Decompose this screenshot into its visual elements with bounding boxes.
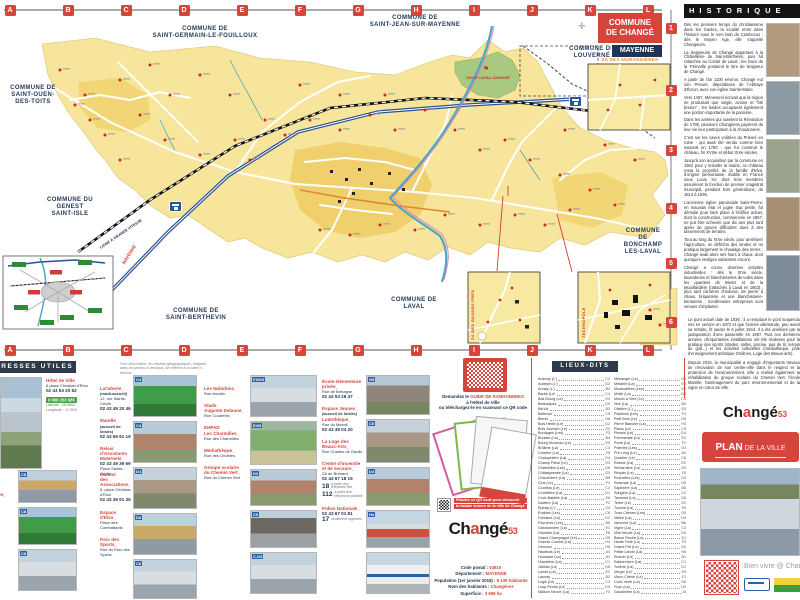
golf-label: GOLF LAVAL-CHANGÉ [458,76,518,81]
guide-line2: GUIDE DE RANDONNÉES [470,394,524,399]
qr-code-balade [437,498,451,512]
adresses-utiles-header: ADRESSES UTILES [0,361,76,373]
lieu-dit-label [383,223,390,225]
lieu-dit-label [173,93,180,95]
lieu-dit-label [268,118,275,120]
lieu-dit-label [388,93,395,95]
grid-letter-top: K [585,5,596,16]
lieu-dit-dot [569,209,572,212]
grid-letter-bottom: B [63,345,74,356]
lieu-dit-dot [59,69,62,72]
address-entry: Maisondes Associations_6, place Christia… [100,472,131,503]
grid-letter-top: J [527,5,538,16]
lieu-dit-label [608,143,615,145]
address-entry: EHPADLes Charmilles_Rue des Charmilles [204,425,248,440]
commune-label: COMMUNE DE SAINT-GERMAIN-LE-FOUILLOUX [153,26,258,40]
lieu-dit-dot [199,74,202,77]
lieu-dit-dot [544,224,547,227]
lieu-dit-label [168,138,175,140]
motorway-icon [570,97,581,106]
photo: C8 [18,549,77,591]
toll-free-badge: 0 800 203 685 [46,397,77,403]
address-entry: Pôle d'enseignementartistique Les Ondine… [0,487,12,507]
historique-paragraph: Dès les premiers temps du christianisme … [684,23,763,48]
photo: D4 [366,467,430,506]
lieu-dit-dot [564,129,567,132]
lieu-dit-dot [229,94,232,97]
photo-chateau-aerial [700,468,800,556]
lieu-dit-label [548,223,555,225]
lieu-dit-label [203,153,210,155]
lieu-dit-dot [284,134,287,137]
guide-line1: Demandez le [442,394,469,399]
grid-letter-top: G [353,5,364,16]
photo-fire-station: H4 [366,510,430,548]
lieu-dit-label [343,128,350,130]
historique-header: HISTORIQUE [684,4,800,18]
lieu-dit-label [153,63,160,65]
address-entry: Centre d'incendieet de secours_ZA de Bré… [322,461,364,499]
photo-police-car [366,552,430,594]
photo-tag: C8 [20,551,27,556]
divider [684,358,685,398]
lieu-dit-label [288,133,295,135]
lieu-dit-label [143,113,150,115]
lieu-dit-label [418,228,425,230]
grid-letter-top: L [643,5,654,16]
lieu-dit-label [428,108,435,110]
address-entry: Parc des Sports_Rue du Parc des Sports [100,537,131,557]
photo: D4 [133,467,197,509]
address-entry: StadeAuguste Delaune_Rue Coubertin [204,403,248,418]
address-column-1-bottom: Maisondes Associations_6, place Christia… [100,472,131,564]
lieu-dit-dot [604,144,607,147]
qr-code-footer [704,560,739,595]
lieu-dit-label [353,233,360,235]
grid-letter-bottom: A [5,345,16,356]
lieu-dit-label [233,93,240,95]
lieu-dit-label [123,158,130,160]
tagline: Bien vivre @ Changé [744,562,800,571]
lieu-dit-label [123,78,130,80]
historique-paragraph: Tout au long du XIXe siècle, pour amélio… [684,238,763,263]
lieu-dit-dot [379,224,382,227]
address-entry: Multi-accueil_02 43 49 04 42 [0,470,12,480]
lieu-dit-label [63,68,70,70]
lieu-dit-label [653,308,660,310]
lieu-dit-dot [424,109,427,112]
lieu-dit-label [618,203,625,205]
photo-tag: C6 [135,561,142,566]
lieu-dit-dot [559,174,562,177]
lieu-dit-dot [414,229,417,232]
lieu-dit-dot [74,104,77,107]
change53-logo: Changé53 [437,519,529,539]
photo-tag: C-D3 [252,554,263,559]
lieu-dit-label [93,118,100,120]
lieu-dit-label [203,73,210,75]
lieu-dit-dot [454,129,457,132]
lieu-dit-dot [634,159,637,162]
lieu-dit-label [313,118,320,120]
address-column-1-side: Lal'aberie_(multi-accueil)12, rue Sainte… [100,386,131,483]
lieu-dit-label [508,138,515,140]
address-column-1-main: Hôtel de Ville_6 place Christian d'Elva0… [46,378,98,421]
commune-label: COMMUNE DE SAINT-OUEN- DES-TOITS [10,85,56,106]
lieu-dit-label [563,173,570,175]
address-entry: École élémentaireprivée_Rue de Bretagne0… [322,379,364,399]
grid-letter-bottom: G [353,345,364,356]
lieu-dit-dot [529,159,532,162]
plan-de-la-ville-badge: PLAN DE LA VILLE [702,432,799,462]
inset-technopole-label: TECHNOPOLE [582,307,586,338]
lieu-dit-dot [514,214,517,217]
address-column-2: Les Nabidons_Rue AncelinStadeAuguste Del… [204,386,248,487]
photo-tag: C4 [135,377,142,382]
lieu-dit-dot [249,159,252,162]
inset-za-morandieres [588,64,670,130]
photo-tag: C8 [20,509,27,514]
lieux-dits-header: LIEUX-DITS [552,361,618,372]
historique-paragraph: Vers 1497, Ménesvrel écrivait que la rég… [684,96,763,116]
map-department-box: MAYENNE [612,45,662,57]
lieu-dit-dot [339,94,342,97]
lieu-dit-dot [169,94,172,97]
photo-tag: E4/5 [252,423,262,428]
grid-letter-top: B [63,5,74,16]
address-entry: Groupe scolairedu Chemin Vert_Rue du Che… [204,465,248,480]
adresses-note: Pour information, les repères géographiq… [120,362,212,375]
motorway-icon [170,202,181,211]
lieux-dits-row: Gaudinière (La)J4 [614,590,686,595]
photo-tag: C4 [135,423,142,428]
photo-tag: C8 [20,472,27,477]
historique-wide-paragraphs: Le pont actuel date de 1936 ; il a rempl… [688,318,800,395]
lieu-dit-dot [384,94,387,97]
grid-number: 2 [666,85,677,96]
lieu-dit-label [323,228,330,230]
address-entry: Police Nationale_02 43 67 01 8117seuleme… [322,506,364,522]
photo: C4 [133,421,197,463]
lieu-dit-dot [659,324,662,327]
commune-label: COMMUNE DE SAINT-JEAN-SUR-MAYENNE [370,15,461,29]
historique-text-column: Dès les premiers temps du christianisme … [684,23,763,313]
historique-photo [766,255,800,311]
photo-tag: C5 [368,421,375,426]
address-entry: Cimetière_Rue Sainte-Cécile [0,515,12,525]
lieu-dit-dot [149,64,152,67]
grid-letter-bottom: E [237,345,248,356]
grid-letter-top: A [5,5,16,16]
photo-tag: C5 [252,512,259,517]
photo: C8 [18,507,77,545]
lieu-dit-dot [479,149,482,152]
balade-line1: Flashez ce QR code pour découvrir [454,498,527,503]
historique-paragraph: Jusqu'à son acquisition par la commune e… [684,159,763,198]
lieu-dit-dot [444,214,447,217]
historique-paragraph: L'ancienne église paroissiale Saint-Pier… [684,201,763,235]
grid-letter-bottom: D [179,345,190,356]
lieu-dit-dot [139,114,142,117]
balade-line2: la balade sonore de la ville de Changé [454,504,527,509]
address-entry: Médiathèque_Rue des Ondines [204,448,248,458]
lieu-dit-dot [89,119,92,122]
lieu-dit-label [483,223,490,225]
lieu-dit-label [518,213,525,215]
town-map-poster: COMMUNE DE SAINT-GERMAIN-LE-FOUILLOUXCOM… [0,0,800,600]
historique-paragraph: A partir de l'an 1100 environ, Changé eu… [684,78,763,93]
grid-letter-bottom: K [585,345,596,356]
lieu-dit-dot [369,114,372,117]
address-entry: Hôtel de Ville_6 place Christian d'Elva0… [46,378,98,414]
lieu-dit-dot [104,134,107,137]
photo: G5 [366,375,430,415]
lieu-dit-label [238,138,245,140]
lieu-dit-label [483,148,490,150]
photo: D6 [133,513,197,555]
grid-letter-top: E [237,5,248,16]
photo: C4 [133,375,197,417]
lieu-dit-dot [164,139,167,142]
lieu-dit-dot [504,139,507,142]
commune-label: COMMUNE DE BONCHAMP LES-LAVAL [624,228,663,256]
commune-label: COMMUNE DU GENEST SAINT-ISLE [47,197,93,218]
cutoff-address-column: Multi-accueil_02 43 49 04 42Pôle d'ensei… [0,470,12,532]
lieu-dit-label [343,93,350,95]
photo: D3 [250,469,317,506]
inset-grands-pres-label: ZA DES GRANDS PRÉS [471,290,475,340]
lieux-dits-column-1: Ambray (L')C2Aubépin (L')D3Aunay (L')B2B… [538,377,610,595]
guide-randonnees-text: Demandez le GUIDE DE RANDONNÉES à l'Hôte… [435,394,531,411]
grid-number: 4 [666,203,677,214]
inset-technopole [578,272,670,343]
divider [531,358,532,598]
photo-tag: D3 [252,471,259,476]
historique-paragraph: La Seigneurie de Changé appartient à la … [684,51,763,76]
photo-tag: D6 [135,515,142,520]
lieu-dit-dot [234,139,237,142]
lieu-dit-dot [589,189,592,192]
grid-number: 3 [666,145,677,156]
lieu-dit-label [568,128,575,130]
grid-letter-bottom: I [469,345,480,356]
lieu-dit-dot [649,309,652,312]
address-entry: Marelle_(accueil de loisirs)02 43 56 91 … [100,418,131,438]
lieu-dit-dot [299,84,302,87]
grid-letter-top: D [179,5,190,16]
lieu-dit-dot [264,119,267,122]
grid-number: 1 [666,23,677,34]
commune-stats: Code postal : 53810Département : MAYENNE… [428,565,534,597]
lieu-dit-dot [119,79,122,82]
historique-paragraph: Dans les années qui suivirent la Révolut… [684,118,763,133]
photo: C5 [250,510,317,548]
lieu-dit-label [373,113,380,115]
lieux-dits-column-2: Mésanger (Le)G2Métairie (La)E4Morandière… [614,377,686,595]
grid-letter-top: I [469,5,480,16]
lieu-dit-label [303,83,310,85]
grid-letter-bottom: L [643,345,654,356]
balade-sonore-block: Flashez ce QR code pour découvrir la bal… [437,498,529,514]
lieu-dit-label [593,188,600,190]
lieu-dit-dot [319,229,322,232]
historique-paragraph: Changé a connu diverses activités indust… [684,266,763,310]
historique-paragraph: Depuis 2016, la municipalité a engagé d'… [688,361,800,390]
grid-letter-top: H [411,5,422,16]
address-entry: Les Nabidons_Rue Ancelin [204,386,248,396]
guide-line4: ou téléchargez-le en scannant ce QR code [435,405,531,411]
address-column-3: École élémentaireprivée_Rue de Bretagne0… [322,379,364,529]
tourism-logo [774,578,800,592]
inset-overview [3,256,113,329]
historique-photo [766,139,800,193]
lieu-dit-dot [119,159,122,162]
za-morandieres-label: ZA DES MORANDIÈRES [588,57,672,62]
grid-letter-bottom: F [295,345,306,356]
address-entry: Espace Jeunes_(accueil de loisirs)Ludoth… [322,406,364,431]
photo-tag: D4 [135,469,142,474]
map-title-line2: DE CHANGÉ [598,28,662,38]
map-title-line1: COMMUNE [598,18,662,28]
lieu-dit-label [458,128,465,130]
lieu-dit-dot [479,224,482,227]
historique-photo [766,81,800,135]
leaflets-fan [437,416,529,494]
photo: E4/5 [250,421,317,465]
historique-photo [766,23,800,77]
map-title-box: COMMUNE DE CHANGÉ [598,13,662,43]
photo-tag: D4 [368,469,375,474]
lieu-dit-label [253,158,260,160]
golf-flag-icon: ⚑ [483,66,489,73]
address-entry: Espace d'Elva_Place des Combattants [100,510,131,530]
grid-letter-bottom: C [121,345,132,356]
stat-line: Superficie : 3 668 ha [428,591,534,597]
address-entry: La Loge desBeaux-Arts_Rue Charles de Gau… [322,439,364,454]
lieu-dit-label [448,213,455,215]
lieu-dit-label [78,103,85,105]
compass-icon: ✛ [578,22,586,31]
lieu-dit-label [88,93,95,95]
grid-letter-top: F [295,5,306,16]
historique-paragraph: Le pont actuel date de 1936 ; il a rempl… [688,318,800,357]
photo-tag: F3/G3 [252,377,265,382]
inset-za-grands-pres [468,272,540,343]
lieu-dit-label [398,128,405,130]
photo: C8 [18,470,77,503]
grid-letter-bottom: J [527,345,538,356]
change53-logo-small: Changé53 [710,404,800,421]
photo-tag: H4 [368,512,375,517]
photo-hotel-de-ville [0,377,42,469]
lieu-dit-label [533,158,540,160]
lieux-dits-row: Maison Neuve (La)F3 [538,590,610,595]
grid-number: 6 [666,317,677,328]
lieu-dit-label [638,158,645,160]
photo: C-D3 [250,552,317,594]
commune-label: COMMUNE DE LAVAL [391,297,437,311]
agglo-logo [744,578,770,591]
lieu-dit-dot [614,204,617,207]
lieu-dit-dot [309,119,312,122]
address-entry: Lal'aberie_(multi-accueil)12, rue Sainte… [100,386,131,411]
grid-letter-top: C [121,5,132,16]
photo: C5 [366,419,430,463]
qr-code-guide [463,358,507,392]
lieu-dit-label [108,133,115,135]
grid-number: 5 [666,258,677,269]
lieu-dit-dot [394,129,397,132]
photo: C6 [133,559,197,599]
lieu-dit-dot [349,234,352,237]
lieu-dit-dot [339,129,342,132]
photo: F3/G3 [250,375,317,417]
historique-photo [766,197,800,251]
lieu-dit-dot [199,154,202,157]
photo-tag: G5 [368,377,375,382]
commune-label: COMMUNE DE SAINT-BERTHEVIN [166,308,226,322]
historique-paragraph: C'est sur les caves voûtées du Prieuré e… [684,136,763,156]
grid-letter-bottom: H [411,345,422,356]
lieu-dit-dot [84,94,87,97]
lieu-dit-label [573,208,580,210]
